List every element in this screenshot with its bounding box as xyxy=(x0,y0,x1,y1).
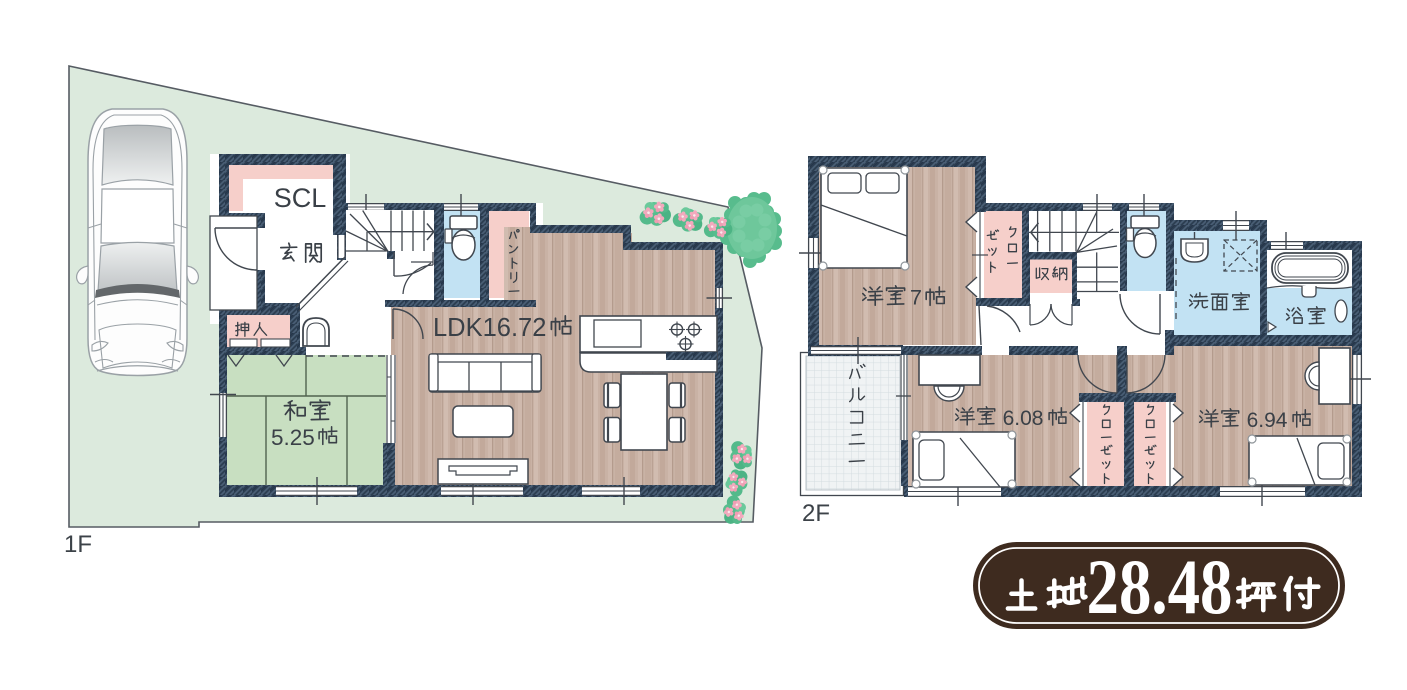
svg-text:5.25: 5.25 xyxy=(271,425,315,450)
svg-text:SCL: SCL xyxy=(274,183,327,213)
svg-text:6.08: 6.08 xyxy=(1003,407,1044,430)
svg-text:7: 7 xyxy=(910,286,922,310)
svg-text:2F: 2F xyxy=(802,500,830,527)
svg-text:1F: 1F xyxy=(64,531,92,558)
svg-text:LDK16.72: LDK16.72 xyxy=(433,314,546,342)
svg-text:6.94: 6.94 xyxy=(1247,409,1288,432)
svg-text:28.48: 28.48 xyxy=(1087,543,1233,630)
